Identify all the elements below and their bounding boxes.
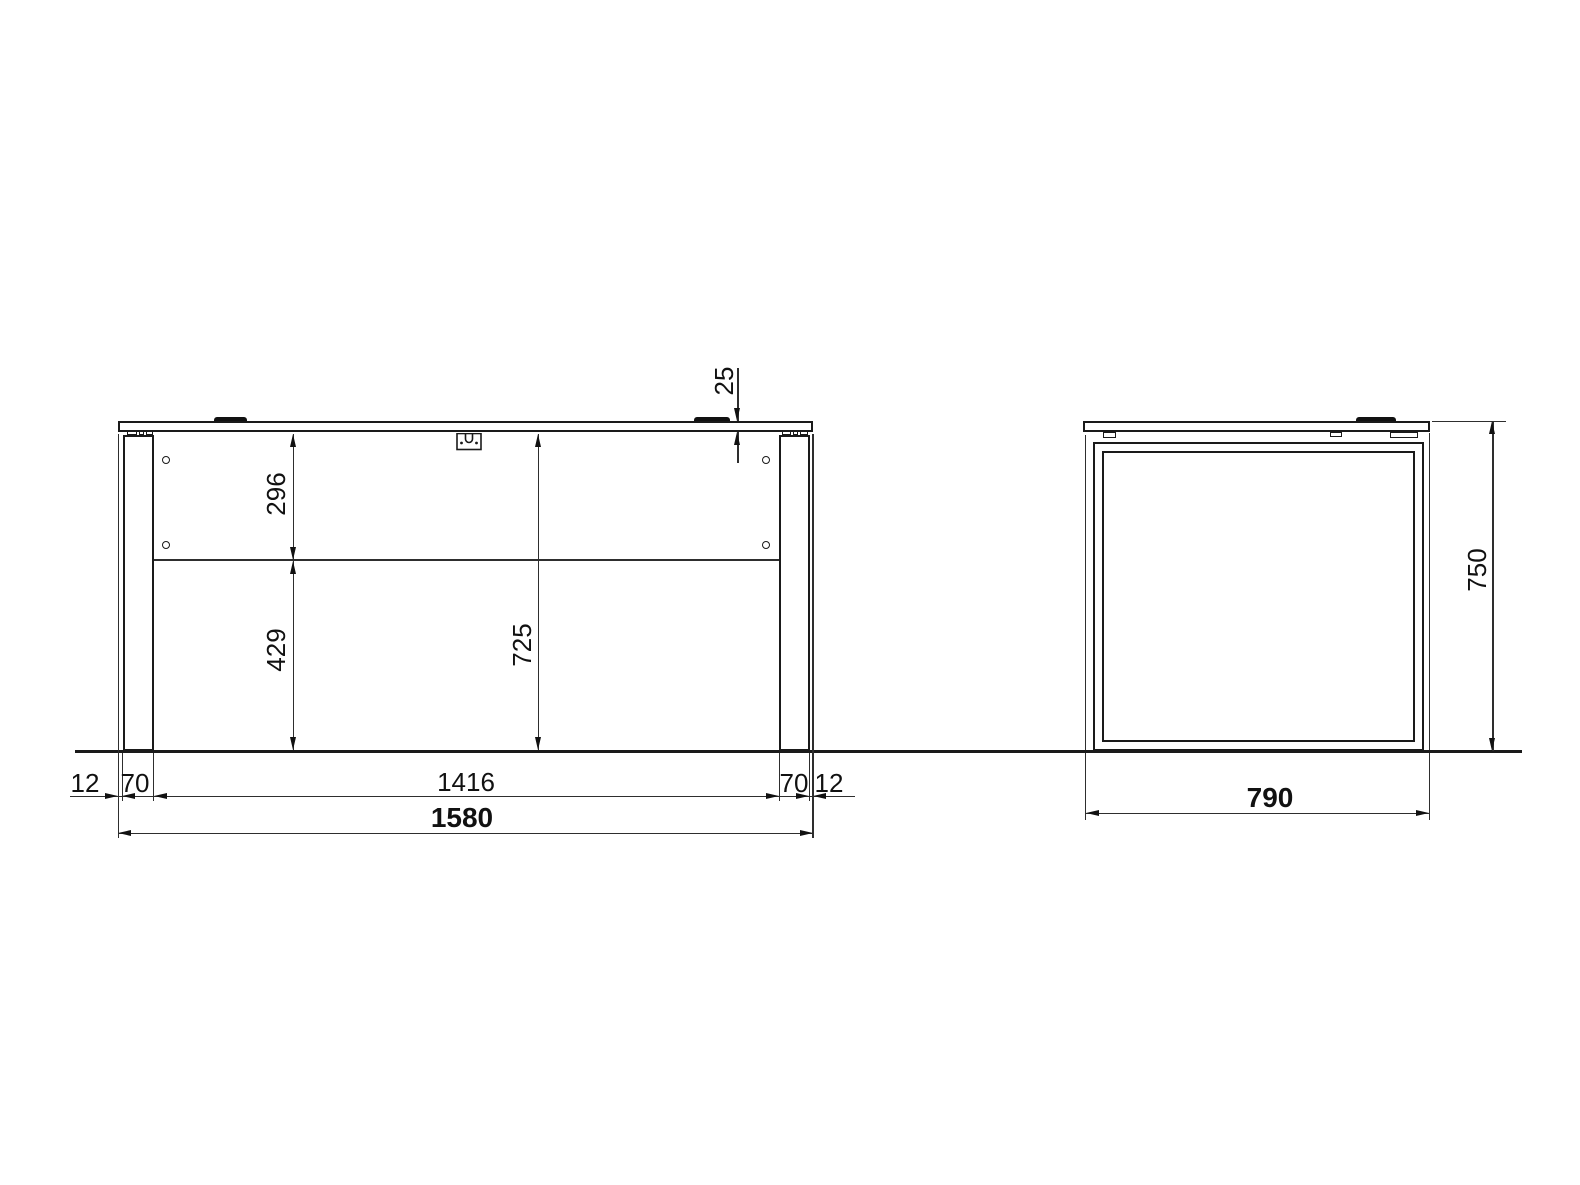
leg-mount-hardware	[1390, 432, 1418, 438]
arrowhead-up	[1489, 421, 1495, 434]
screw-hole	[762, 456, 770, 464]
screw-hole	[162, 541, 170, 549]
arrowhead-up	[734, 432, 740, 445]
modesty-panel-line	[154, 559, 779, 561]
arrowhead-down	[1489, 738, 1495, 751]
desktop-front	[118, 421, 813, 432]
extension-line	[1429, 433, 1430, 820]
screw-hole	[162, 456, 170, 464]
dim-line-725	[538, 434, 540, 750]
cable-grommet-icon	[694, 417, 730, 421]
arrowhead-down	[290, 547, 296, 560]
arrowhead-up	[535, 434, 541, 447]
cable-grommet-icon	[214, 417, 247, 421]
dim-line-750	[1492, 421, 1494, 751]
dim-label-70-right: 70	[774, 770, 814, 796]
technical-drawing-canvas: 25 296 429 725 12 70 1416 70 12 1580 750…	[0, 0, 1580, 1185]
arrowhead-right	[1416, 810, 1429, 816]
dim-line-296-429	[293, 434, 295, 750]
cable-grommet-icon	[1356, 417, 1396, 421]
dim-label-25: 25	[711, 351, 737, 411]
floor-line	[75, 750, 1522, 753]
arrowhead-left	[1086, 810, 1099, 816]
dim-label-750: 750	[1464, 540, 1490, 600]
connector-bracket-icon	[456, 433, 482, 451]
arrowhead-right	[800, 830, 813, 836]
dim-label-429: 429	[263, 620, 289, 680]
dim-label-725: 725	[509, 615, 535, 675]
screw-hole	[762, 541, 770, 549]
dim-label-790: 790	[1220, 784, 1320, 812]
extension-line	[1085, 435, 1086, 820]
arrowhead-up	[290, 434, 296, 447]
arrowhead-left	[118, 830, 131, 836]
dim-label-12-right: 12	[809, 770, 849, 796]
dim-label-70-left: 70	[115, 770, 155, 796]
leg-left-front	[123, 435, 154, 751]
arrowhead-left	[154, 793, 167, 799]
dim-label-296: 296	[263, 464, 289, 524]
arrowhead-up	[290, 561, 296, 574]
arrowhead-down	[290, 737, 296, 750]
dim-label-1416: 1416	[426, 769, 506, 795]
leg-mount-hardware	[1103, 432, 1116, 438]
leg-frame-inner-side	[1102, 451, 1415, 742]
leg-mount-hardware	[1330, 432, 1342, 437]
desktop-side	[1083, 421, 1430, 432]
arrowhead-down	[535, 737, 541, 750]
leg-right-front	[779, 435, 810, 751]
dim-label-1580: 1580	[412, 804, 512, 832]
dim-label-12-left: 12	[65, 770, 105, 796]
